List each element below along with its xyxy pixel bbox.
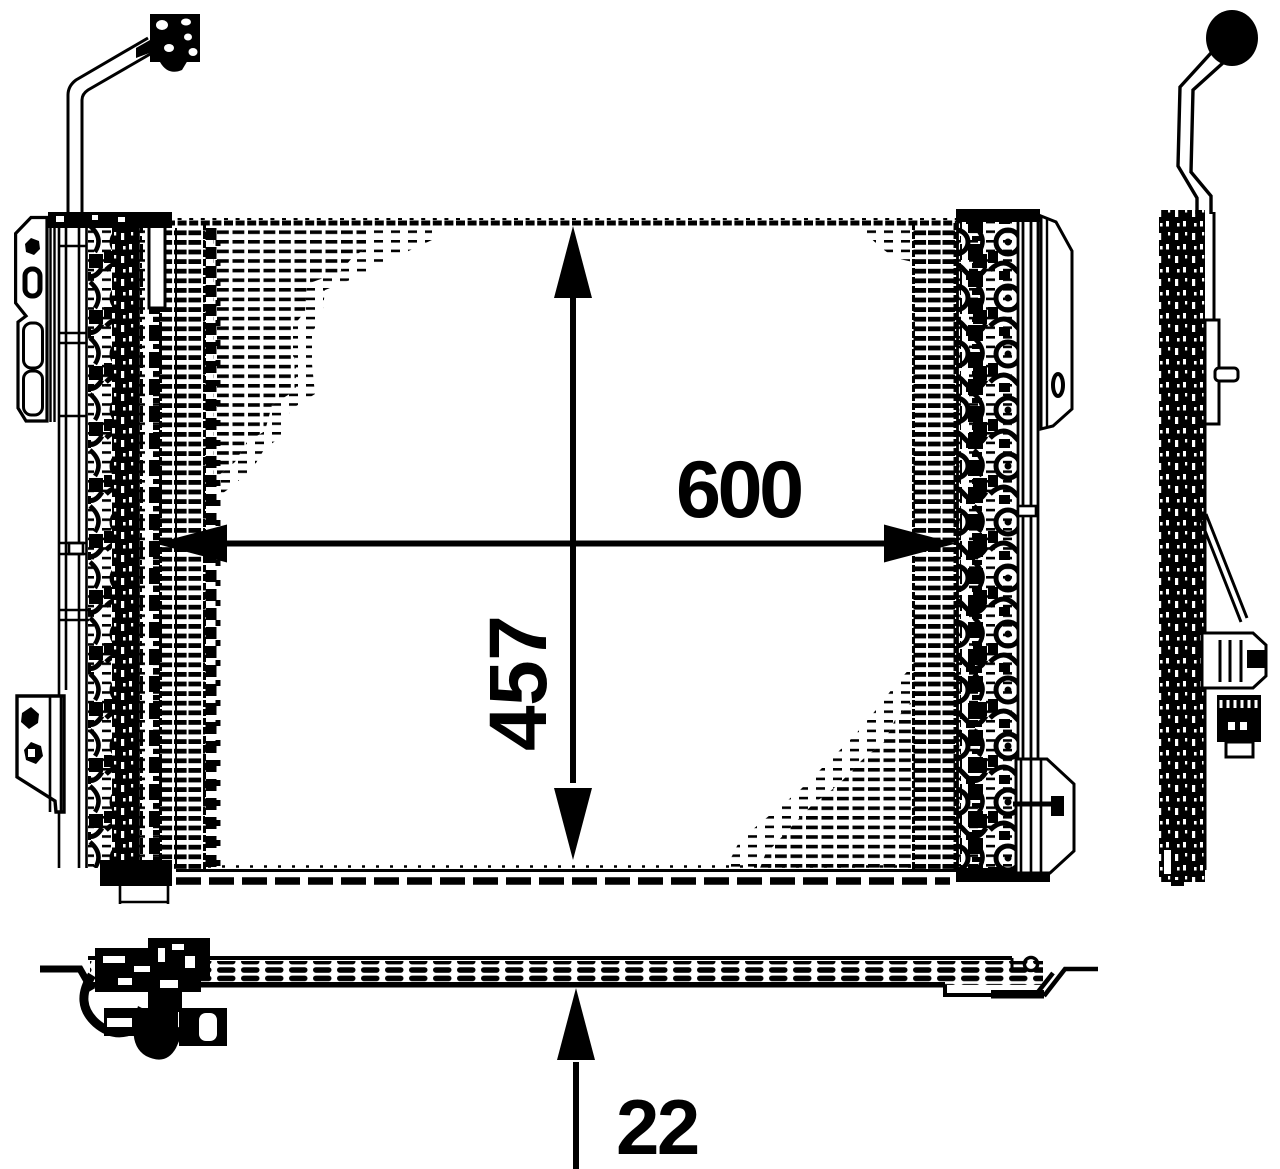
svg-text:457: 457	[473, 616, 564, 751]
svg-text:22: 22	[616, 1083, 698, 1169]
svg-text:600: 600	[676, 445, 801, 535]
